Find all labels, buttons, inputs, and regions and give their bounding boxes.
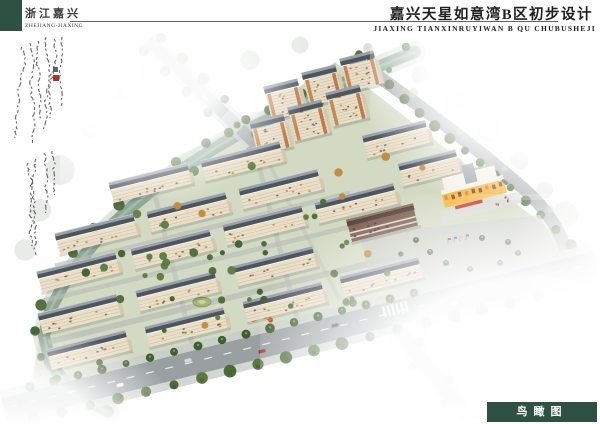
aerial-rendering (0, 0, 600, 424)
project-title-en: JIAXING TIANXINRUYIWAN B QU CHUBUSHEJI (373, 24, 596, 33)
title-block-green-square (0, 0, 22, 31)
project-title-cn: 嘉兴天星如意湾B区初步设计 (390, 3, 593, 24)
view-label-badge: 鸟瞰图 (487, 402, 597, 422)
region-name-cn: 浙江嘉兴 (25, 5, 81, 21)
region-name-en: ZHEJIANG·JIAXING (25, 23, 83, 29)
presentation-sheet: 浙江嘉兴 ZHEJIANG·JIAXING 嘉兴天星如意湾B区初步设计 JIAX… (0, 0, 600, 424)
calligraphy-inscription (4, 33, 74, 268)
